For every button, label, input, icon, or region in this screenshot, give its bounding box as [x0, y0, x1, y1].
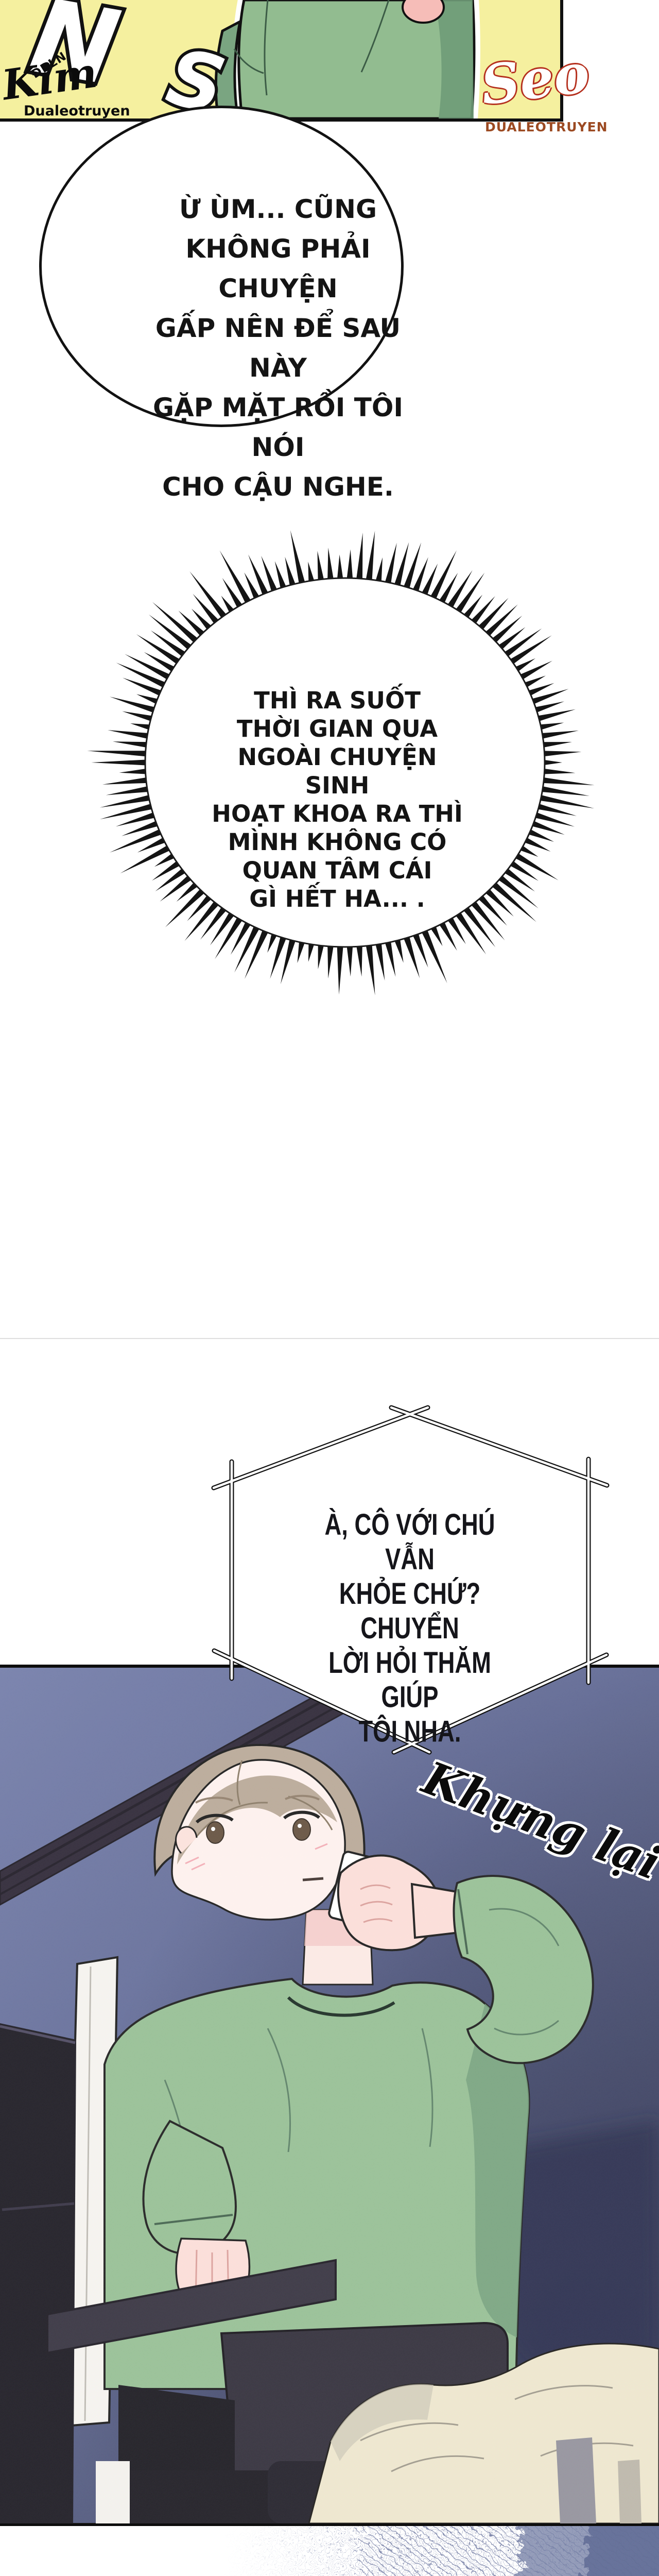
thought-bubble-text: THÌ RA SUỐT THỜI GIAN QUA NGOÀI CHUYỆN S…: [209, 686, 466, 913]
thought-line: GÌ HẾT HA... .: [209, 885, 466, 913]
grunge-footer: [0, 2526, 659, 2576]
speech-bubble-text: Ừ ÙM... CŨNG KHÔNG PHẢI CHUYỆN GẤP NÊN Đ…: [147, 190, 409, 507]
hex-line: TÔI NHA.: [315, 1715, 505, 1749]
top-panel: N S ĐBLN Kim Dualeotruyen Seo DUALEOTRUY…: [0, 0, 563, 122]
speech-line: CHO CẬU NGHE.: [147, 467, 409, 507]
thought-line: QUAN TÂM CÁI: [209, 856, 466, 885]
thought-line: THỜI GIAN QUA: [209, 715, 466, 743]
grunge-texture: [227, 2526, 659, 2576]
dark-panel: [0, 1665, 659, 2526]
hex-line: LỜI HỎI THĂM GIÚP: [315, 1646, 505, 1715]
hex-bubble-text: À, CÔ VỚI CHÚ VẪN KHỎE CHỨ? CHUYỂN LỜI H…: [315, 1507, 505, 1749]
speech-line: GẶP MẶT RỒI TÔI NÓI: [147, 388, 409, 467]
hex-line: KHỎE CHỨ? CHUYỂN: [315, 1577, 505, 1646]
dark-panel-art: [0, 1668, 659, 2523]
seo-watermark-main: Seo: [477, 41, 593, 117]
kim-watermark-sub: Dualeotruyen: [24, 103, 130, 119]
hand-top: [403, 0, 444, 23]
kim-watermark-main: Kim: [0, 48, 100, 110]
thought-line: HOẠT KHOA RA THÌ: [209, 800, 466, 828]
speech-line: GẤP NÊN ĐỂ SAU NÀY: [147, 309, 409, 388]
kim-watermark: ĐBLN Kim Dualeotruyen: [1, 45, 114, 128]
thought-line: THÌ RA SUỐT: [209, 686, 466, 715]
noise-overlay: [0, 1668, 659, 2523]
seo-watermark-sub: DUALEOTRUYEN: [485, 120, 608, 134]
page-divider-line: [0, 1338, 659, 1339]
comic-page: N S ĐBLN Kim Dualeotruyen Seo DUALEOTRUY…: [0, 0, 659, 2576]
speech-line: Ừ ÙM... CŨNG: [147, 190, 409, 229]
character-torso-top: [216, 0, 474, 118]
seo-watermark: Seo DUALEOTRUYEN: [478, 47, 606, 140]
hex-line: À, CÔ VỚI CHÚ VẪN: [315, 1507, 505, 1577]
thought-line: NGOÀI CHUYỆN SINH: [209, 743, 466, 800]
speech-line: KHÔNG PHẢI CHUYỆN: [147, 229, 409, 309]
thought-line: MÌNH KHÔNG CÓ: [209, 828, 466, 856]
